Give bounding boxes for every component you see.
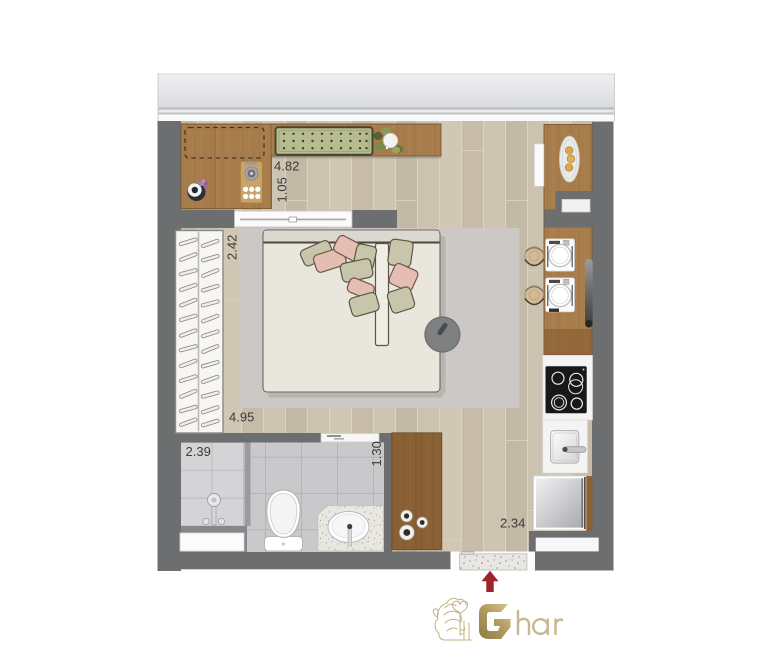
svg-text:4.82: 4.82	[274, 159, 299, 174]
svg-text:1.30: 1.30	[369, 441, 384, 466]
svg-text:4.95: 4.95	[229, 410, 254, 425]
svg-text:2.39: 2.39	[186, 444, 211, 459]
svg-text:1.05: 1.05	[275, 177, 290, 202]
svg-text:2.42: 2.42	[225, 235, 240, 260]
svg-text:2.34: 2.34	[500, 516, 525, 531]
